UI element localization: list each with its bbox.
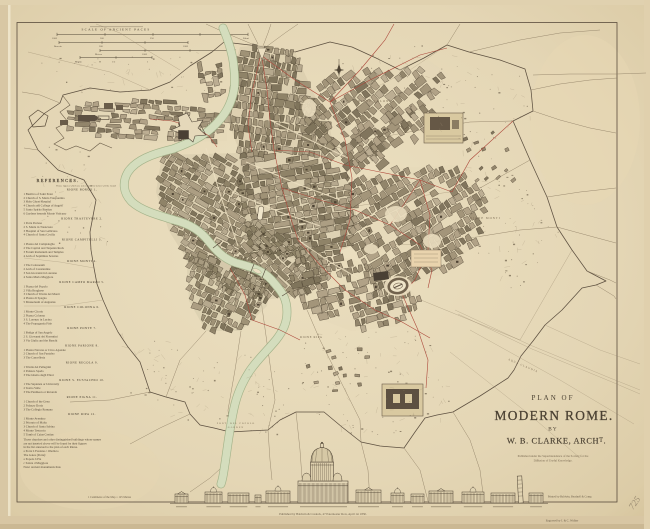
svg-text:PORT. DEL POPOLO: PORT. DEL POPOLO xyxy=(217,422,255,425)
svg-text:Published under the Superinten: Published under the Superintendence of t… xyxy=(518,454,589,458)
svg-text:GARDEN: GARDEN xyxy=(228,426,244,429)
svg-text:Miglio: Miglio xyxy=(75,61,83,64)
svg-text:Printed by Baldwin, Beadnell &: Printed by Baldwin, Beadnell & Comp. xyxy=(548,496,593,499)
svg-text:RIONE COLONNA: RIONE COLONNA xyxy=(358,99,396,103)
svg-text:3 The Pantheon or Rotonda: 3 The Pantheon or Rotonda xyxy=(24,390,58,394)
svg-text:RIONE PARIONE 8.: RIONE PARIONE 8. xyxy=(65,343,99,347)
svg-text:5 Mausoleum of Augustus: 5 Mausoleum of Augustus xyxy=(24,300,57,304)
svg-text:1 Centimetre of the Map = 125: 1 Centimetre of the Map = 125 Metres xyxy=(88,496,131,499)
svg-text:RIONE PIGNA 11.: RIONE PIGNA 11. xyxy=(67,395,98,399)
svg-text:RIONE PONTE 7.: RIONE PONTE 7. xyxy=(67,326,97,330)
svg-text:RIONE MONTI: RIONE MONTI xyxy=(470,216,501,220)
svg-text:RIONE TRASTEVERE 2.: RIONE TRASTEVERE 2. xyxy=(61,217,103,221)
svg-text:Note: ancient monuments thus: Note: ancient monuments thus xyxy=(24,465,62,469)
svg-text:1000: 1000 xyxy=(142,53,148,56)
svg-text:REFERENCES.: REFERENCES. xyxy=(37,178,80,183)
svg-text:4 Santa Maria Maggiore: 4 Santa Maria Maggiore xyxy=(24,275,54,279)
svg-text:Braccia: Braccia xyxy=(54,45,63,48)
svg-text:3 The Cancelleria: 3 The Cancelleria xyxy=(24,356,46,360)
svg-text:RIONE BORGO 1.: RIONE BORGO 1. xyxy=(67,188,97,192)
svg-text:3 The Collegio Romano: 3 The Collegio Romano xyxy=(24,407,54,411)
svg-text:RIONE CAMPITELLI 3.: RIONE CAMPITELLI 3. xyxy=(62,238,102,242)
svg-text:RIONE COLONNA 6.: RIONE COLONNA 6. xyxy=(64,305,99,309)
svg-text:SCALE OF ANCIENT PACES: SCALE OF ANCIENT PACES xyxy=(82,28,151,32)
svg-text:4 The Propaganda Fide: 4 The Propaganda Fide xyxy=(24,321,53,325)
svg-text:1000: 1000 xyxy=(183,45,189,48)
svg-text:Engraved by J. & C. Walker: Engraved by J. & C. Walker xyxy=(546,519,579,523)
svg-text:BY: BY xyxy=(548,427,558,433)
svg-text:RIONE CAMPO MARZO 5.: RIONE CAMPO MARZO 5. xyxy=(59,280,104,284)
svg-text:MODERN ROME.: MODERN ROME. xyxy=(494,408,613,423)
svg-text:Palmi: Palmi xyxy=(243,37,249,40)
svg-text:4 Arch of Septimius Severus: 4 Arch of Septimius Severus xyxy=(24,254,60,258)
svg-text:Metres: Metres xyxy=(95,53,102,56)
svg-text:RIONE MONTI 4.: RIONE MONTI 4. xyxy=(67,259,97,263)
svg-text:RIONE RIPA: RIONE RIPA xyxy=(300,335,323,339)
svg-text:RIONE S. EUSTACHIO 10.: RIONE S. EUSTACHIO 10. xyxy=(59,378,104,382)
svg-text:PLAN OF: PLAN OF xyxy=(532,394,575,402)
svg-text:6 Gardens beneath Monte Vatica: 6 Gardens beneath Monte Vaticano xyxy=(24,212,67,216)
svg-text:4 Church of Santa Cecilia: 4 Church of Santa Cecilia xyxy=(24,233,56,237)
svg-text:3 The Ghetto degli Ebrei: 3 The Ghetto degli Ebrei xyxy=(24,373,54,377)
svg-text:Diffusion of Useful Knowledge.: Diffusion of Useful Knowledge. xyxy=(534,459,573,463)
svg-text:RIONE RIPA 12.: RIONE RIPA 12. xyxy=(68,412,96,416)
svg-text:5 Tomb of Caius Cestius: 5 Tomb of Caius Cestius xyxy=(24,432,55,436)
svg-text:RIONE REGOLA 9.: RIONE REGOLA 9. xyxy=(66,361,98,365)
svg-text:1000: 1000 xyxy=(52,37,58,40)
svg-text:3 Via Giulia and the Banchi: 3 Via Giulia and the Banchi xyxy=(24,339,58,343)
svg-text:W. B. CLARKE, ARCHT.: W. B. CLARKE, ARCHT. xyxy=(507,437,606,446)
